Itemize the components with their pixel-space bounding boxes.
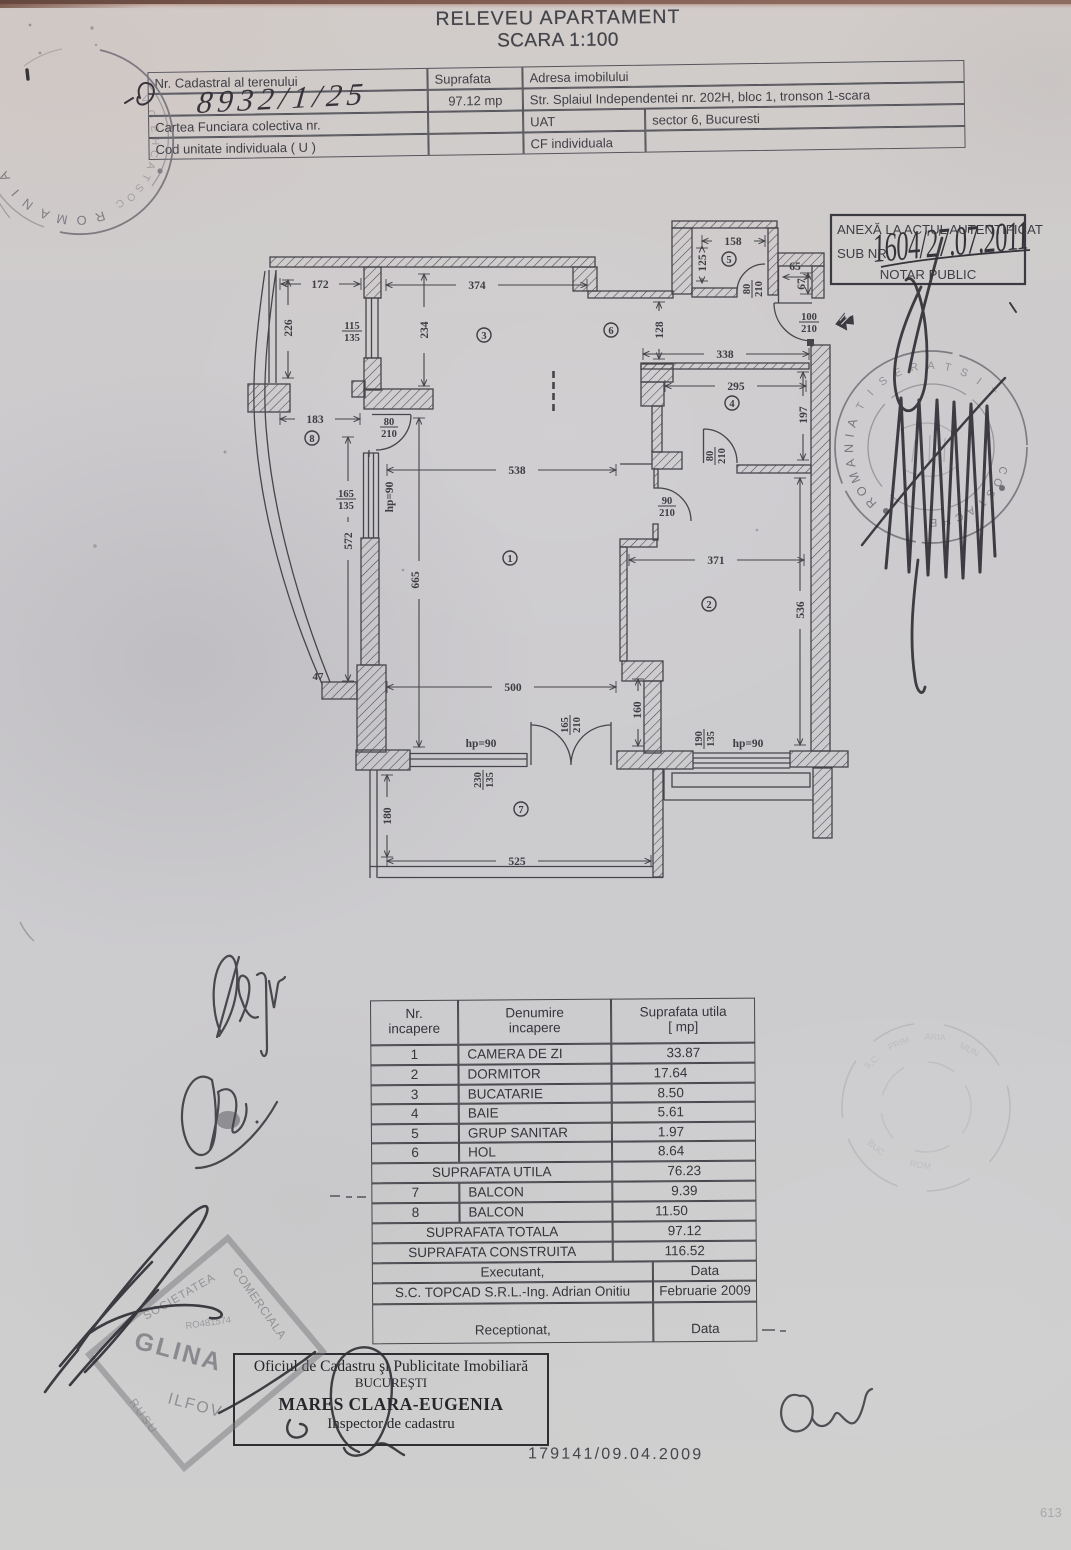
svg-text:210: 210 [754,281,765,297]
svg-text:hp=90: hp=90 [384,481,396,512]
svg-text:135: 135 [485,772,496,788]
svg-text:613: 613 [1040,1505,1062,1520]
svg-text:T: T [943,361,952,374]
svg-text:135: 135 [706,731,717,747]
svg-text:536: 536 [795,601,807,619]
svg-text:RUSU: RUSU [127,1397,160,1437]
svg-text:T: T [854,400,868,412]
svg-text:160: 160 [632,701,644,719]
svg-text:67: 67 [796,278,808,290]
svg-text:8: 8 [309,434,314,445]
svg-text:197: 197 [798,406,810,424]
svg-text:S: S [877,375,890,389]
svg-text:210: 210 [801,324,817,335]
svg-text:3: 3 [481,331,486,342]
svg-text:135: 135 [338,501,354,512]
svg-text:I: I [843,433,857,438]
svg-text:BUC: BUC [865,1138,886,1158]
svg-text:500: 500 [504,682,522,694]
svg-text:210: 210 [659,508,675,519]
svg-text:RO481574: RO481574 [185,1315,232,1332]
svg-text:371: 371 [707,555,725,567]
svg-text:180: 180 [382,807,394,825]
svg-text:MUN: MUN [958,1040,981,1058]
svg-text:234: 234 [419,321,431,339]
svg-text:190: 190 [694,731,705,747]
svg-text:ILFOV: ILFOV [166,1390,225,1421]
svg-text:230: 230 [473,772,484,788]
svg-text:O: O [76,212,87,228]
svg-text:128: 128 [654,321,666,339]
svg-text:115: 115 [344,321,359,332]
svg-text:7: 7 [518,805,523,816]
svg-text:80: 80 [705,451,716,462]
svg-text:C: C [995,465,1009,476]
svg-text:hp=90: hp=90 [466,738,497,750]
svg-text:1: 1 [507,554,512,565]
svg-text:ARIA: ARIA [924,1031,946,1042]
svg-text:158: 158 [724,236,742,248]
svg-text:2: 2 [706,600,711,611]
svg-text:I: I [8,187,22,200]
svg-text:A: A [0,169,13,184]
svg-text:100: 100 [801,312,817,323]
svg-text:125: 125 [697,254,709,272]
svg-text:R: R [94,208,108,225]
svg-text:165: 165 [338,489,354,500]
svg-text:S: S [958,366,970,380]
svg-text:M: M [847,470,864,485]
svg-text:5: 5 [726,255,731,266]
svg-text:295: 295 [727,381,745,393]
svg-text:4: 4 [729,399,735,410]
svg-text:183: 183 [306,414,324,426]
svg-text:665: 665 [410,571,422,589]
svg-text:A: A [144,160,158,171]
svg-text:6: 6 [608,326,613,337]
svg-text:PRIM: PRIM [887,1034,912,1052]
svg-text:80: 80 [742,284,753,295]
svg-text:A: A [845,416,861,429]
svg-text:572: 572 [343,532,355,550]
svg-text:A: A [843,457,859,469]
svg-text:N: N [19,195,36,213]
svg-text:I: I [974,376,984,388]
svg-text:8932/1/25: 8932/1/25 [195,76,369,120]
svg-text:S: S [132,181,146,194]
svg-text:A: A [37,205,51,222]
svg-text:210: 210 [717,448,728,464]
svg-text:80: 80 [384,417,395,428]
svg-text:172: 172 [311,279,329,291]
svg-text:O: O [853,483,870,499]
svg-text:374: 374 [468,280,486,292]
svg-text:A: A [927,360,935,372]
svg-text:47: 47 [313,671,325,683]
svg-text:R: R [863,495,879,511]
svg-text:M: M [55,211,68,228]
svg-text:C: C [113,196,126,210]
svg-text:T: T [139,171,153,183]
svg-text:C: C [147,149,160,159]
svg-text:GLINA: GLINA [131,1327,225,1377]
svg-text:65: 65 [789,261,801,273]
svg-text:135: 135 [344,333,360,344]
svg-text:90: 90 [662,496,673,507]
svg-text:I: I [865,388,876,398]
svg-text:E: E [148,125,161,134]
svg-text:H: H [149,137,161,145]
svg-text:hp=90: hp=90 [733,738,764,750]
svg-text:N: N [842,444,856,453]
svg-text:ROM: ROM [909,1159,931,1172]
svg-text:210: 210 [381,429,397,440]
svg-text:226: 226 [283,319,295,337]
svg-text:O: O [124,190,138,204]
svg-text:210: 210 [572,717,583,733]
svg-text:S.C.: S.C. [862,1052,882,1071]
svg-text:538: 538 [508,465,526,477]
svg-text:O: O [144,108,158,119]
svg-text:338: 338 [716,349,734,361]
svg-text:165: 165 [560,717,571,733]
svg-text:525: 525 [508,856,526,868]
